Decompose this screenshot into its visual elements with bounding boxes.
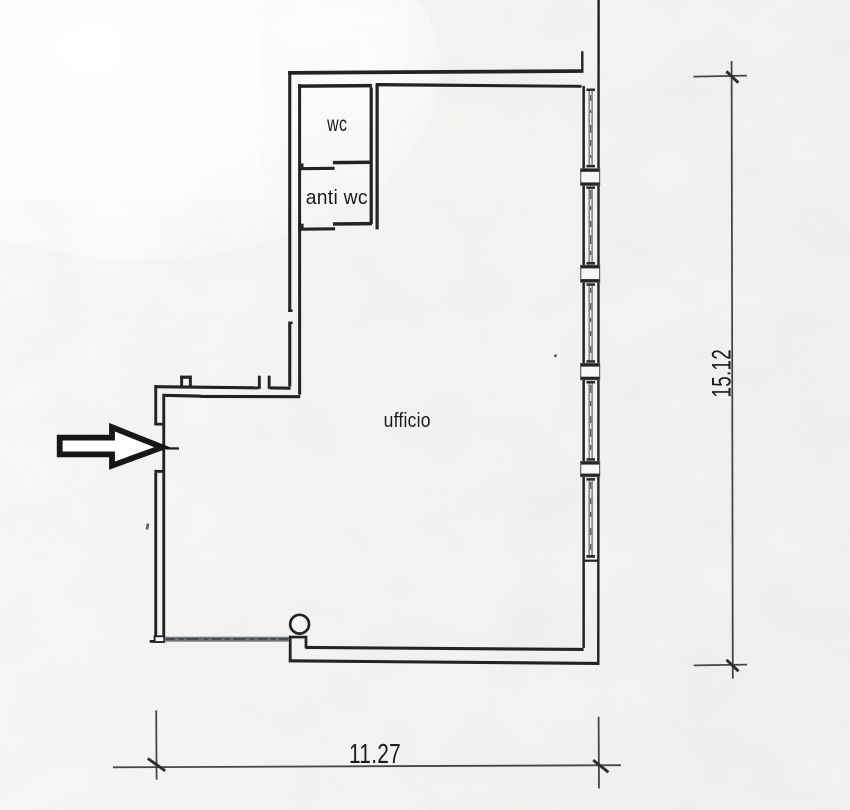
svg-text:11.27: 11.27 (349, 739, 401, 770)
svg-text:anti wc: anti wc (306, 186, 368, 208)
svg-text:ufficio: ufficio (384, 410, 431, 433)
svg-text:wc: wc (326, 112, 347, 136)
svg-text:15.12: 15.12 (706, 349, 736, 397)
